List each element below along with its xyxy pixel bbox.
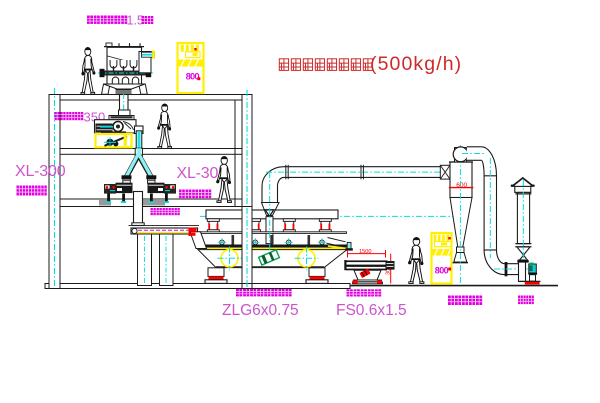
- svg-text:XL-300: XL-300: [15, 163, 66, 180]
- svg-text:ZLG6x0.75: ZLG6x0.75: [222, 302, 299, 319]
- svg-text:800: 800: [435, 266, 449, 276]
- svg-text:FS0.6x1.5: FS0.6x1.5: [336, 302, 407, 319]
- svg-text:1.5: 1.5: [127, 14, 144, 28]
- svg-text:1500: 1500: [359, 249, 371, 255]
- svg-text:(500kg/h): (500kg/h): [370, 53, 462, 75]
- svg-text:600: 600: [456, 182, 467, 189]
